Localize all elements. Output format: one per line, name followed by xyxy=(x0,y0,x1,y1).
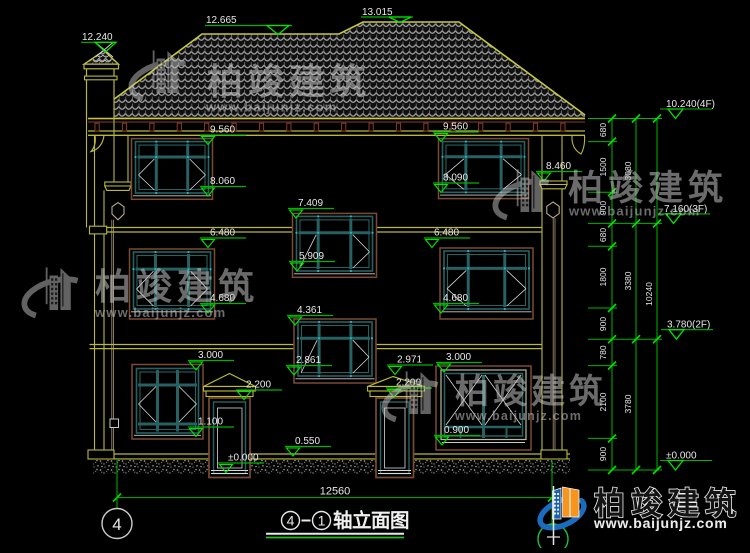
svg-text:5.909: 5.909 xyxy=(299,251,324,262)
svg-text:8.060: 8.060 xyxy=(210,176,235,187)
svg-text:2.971: 2.971 xyxy=(397,355,422,366)
svg-text:900: 900 xyxy=(598,447,608,461)
svg-text:柏竣建筑: 柏竣建筑 xyxy=(207,61,371,102)
svg-text:2.861: 2.861 xyxy=(296,355,321,366)
svg-text:780: 780 xyxy=(598,345,608,359)
svg-text:www.baijunjz.com: www.baijunjz.com xyxy=(568,204,700,219)
svg-text:8.090: 8.090 xyxy=(443,173,468,184)
svg-text:12560: 12560 xyxy=(320,486,351,498)
svg-text:12.665: 12.665 xyxy=(206,15,237,26)
svg-text:2.200: 2.200 xyxy=(246,380,271,391)
svg-text:柏竣建筑: 柏竣建筑 xyxy=(95,266,259,307)
svg-text:6.480: 6.480 xyxy=(210,228,235,239)
svg-text:0.900: 0.900 xyxy=(444,425,469,436)
svg-text:1: 1 xyxy=(318,513,326,529)
svg-text:7.409: 7.409 xyxy=(298,198,323,209)
svg-text:1800: 1800 xyxy=(598,267,608,286)
svg-text:www.baijunjz.com: www.baijunjz.com xyxy=(593,515,728,531)
svg-text:www.baijunjz.com: www.baijunjz.com xyxy=(94,305,226,320)
svg-text:6.480: 6.480 xyxy=(434,228,459,239)
svg-text:柏竣建筑: 柏竣建筑 xyxy=(568,168,728,208)
svg-text:10240: 10240 xyxy=(644,282,654,306)
svg-text:680: 680 xyxy=(598,123,608,137)
svg-text:13.015: 13.015 xyxy=(362,7,393,18)
svg-text:轴立面图: 轴立面图 xyxy=(333,509,409,532)
svg-text:www.baijunjz.com: www.baijunjz.com xyxy=(205,100,337,115)
svg-text:3.000: 3.000 xyxy=(198,350,223,361)
svg-text:3780: 3780 xyxy=(623,394,633,413)
svg-text:900: 900 xyxy=(598,317,608,331)
svg-text:680: 680 xyxy=(598,228,608,242)
svg-text:3380: 3380 xyxy=(623,271,633,290)
svg-text:www.baijunjz.com: www.baijunjz.com xyxy=(454,409,582,423)
svg-text:4.680: 4.680 xyxy=(443,293,468,304)
svg-text:±0.000: ±0.000 xyxy=(228,453,259,464)
svg-text:9.560: 9.560 xyxy=(210,125,235,136)
svg-text:12.240: 12.240 xyxy=(82,32,113,43)
svg-text:4: 4 xyxy=(112,515,121,534)
svg-text:3.000: 3.000 xyxy=(446,352,471,363)
svg-text:4.361: 4.361 xyxy=(297,305,322,316)
svg-text:1.100: 1.100 xyxy=(198,417,223,428)
svg-text:4: 4 xyxy=(287,513,295,529)
svg-text:柏竣建筑: 柏竣建筑 xyxy=(455,372,607,411)
svg-text:9.560: 9.560 xyxy=(443,122,468,133)
svg-text:0.550: 0.550 xyxy=(295,436,320,447)
